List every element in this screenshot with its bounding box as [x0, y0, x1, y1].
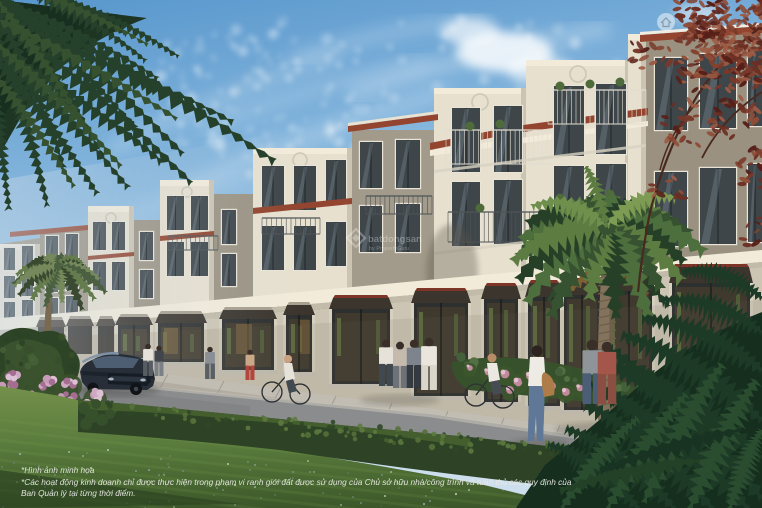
- svg-text:batdongsan: batdongsan: [368, 234, 422, 245]
- svg-text:Ban Quản lý tại từng thời điểm: Ban Quản lý tại từng thời điểm.: [21, 488, 136, 498]
- svg-text:*Các hoạt động kinh doanh chỉ: *Các hoạt động kinh doanh chỉ được thực …: [21, 477, 572, 487]
- svg-text:by PropertyGuru: by PropertyGuru: [369, 246, 409, 252]
- svg-text:*Hình ảnh minh họa: *Hình ảnh minh họa: [21, 465, 95, 475]
